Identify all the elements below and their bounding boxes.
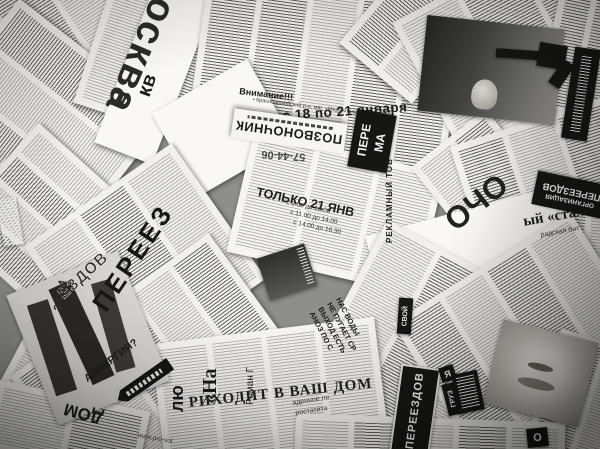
face-mouth-shadow — [517, 375, 556, 394]
face-eye-shadow — [527, 361, 554, 374]
author-roman: Роман Г — [245, 361, 256, 405]
unreadable-white-text — [456, 374, 480, 409]
newsprint-collage-photo: осква в кв Внимание!!! • Красноармейский… — [0, 0, 600, 449]
o-chip: О — [526, 427, 549, 448]
svoi-label: СВОЙ — [401, 306, 409, 327]
unreadable-white-text — [570, 56, 592, 133]
masthead-reklamny: РЕКЛАМНЫЙ ТОВ — [385, 138, 394, 243]
pere-label: ПЕРЕ — [354, 122, 373, 157]
light-object-in-photo — [470, 78, 499, 111]
svoi-chip: СВОЙ — [397, 298, 413, 335]
dark-interior-photo — [417, 15, 564, 125]
pereezdov-label: ПЕРЕЕЗДОВ — [404, 372, 427, 449]
o-label: О — [533, 431, 543, 444]
headline-lyu: лю — [167, 375, 188, 412]
title-na-quote: «На — [199, 359, 222, 404]
